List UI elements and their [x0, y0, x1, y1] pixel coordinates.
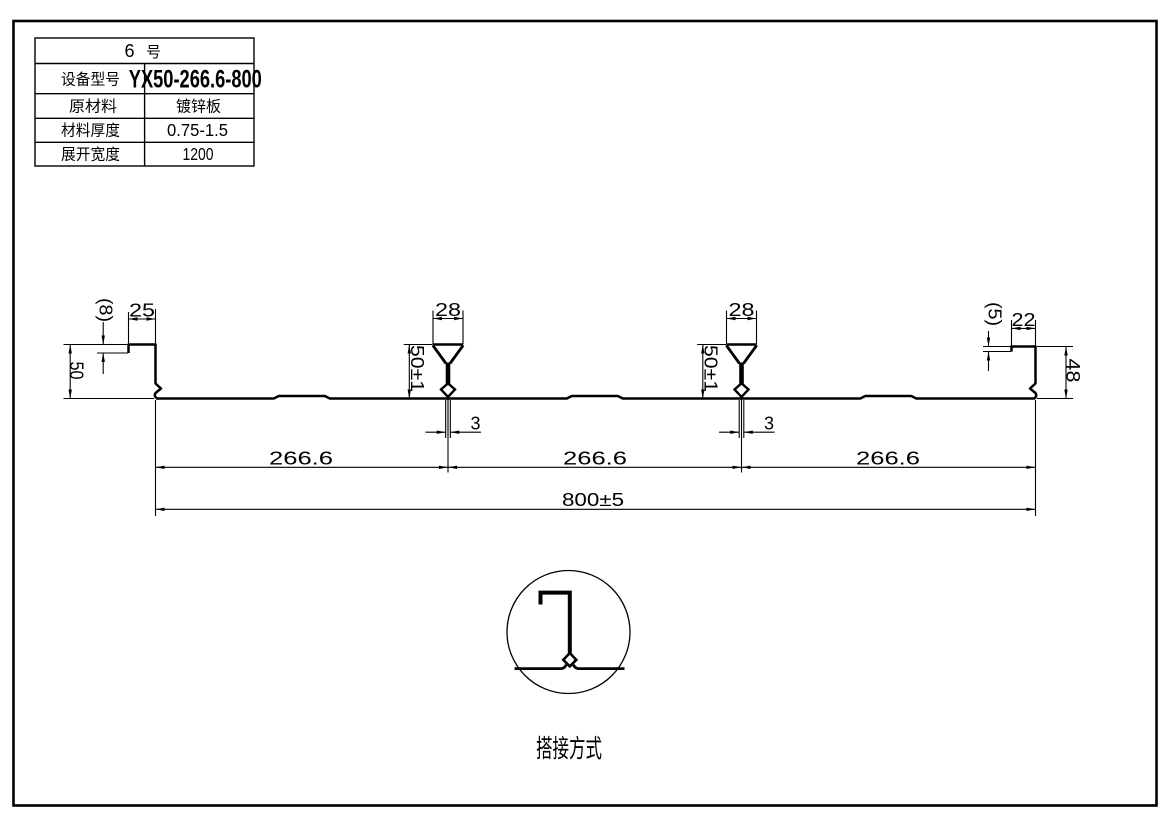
svg-text:展开宽度: 展开宽度	[61, 147, 120, 164]
svg-text:设备型号: 设备型号	[61, 71, 120, 88]
svg-text:号: 号	[146, 44, 161, 61]
svg-text:镀锌板: 镀锌板	[176, 98, 221, 116]
svg-text:25: 25	[129, 301, 155, 321]
svg-text:(8): (8)	[96, 298, 116, 322]
svg-text:266.6: 266.6	[856, 448, 920, 469]
svg-text:50: 50	[65, 362, 86, 380]
svg-text:50±1: 50±1	[701, 345, 721, 392]
svg-text:266.6: 266.6	[563, 448, 627, 469]
svg-text:6: 6	[124, 41, 134, 61]
svg-text:材料厚度: 材料厚度	[61, 123, 120, 140]
svg-text:原材料: 原材料	[69, 99, 117, 116]
svg-text:(5): (5)	[985, 302, 1005, 326]
svg-text:48: 48	[1061, 359, 1082, 383]
svg-text:50±1: 50±1	[407, 345, 427, 392]
svg-text:搭接方式: 搭接方式	[536, 735, 602, 763]
svg-text:1200: 1200	[183, 144, 214, 164]
svg-text:266.6: 266.6	[269, 448, 333, 469]
svg-text:3: 3	[470, 414, 480, 434]
svg-text:28: 28	[729, 300, 755, 320]
svg-text:3: 3	[764, 414, 774, 434]
svg-text:YX50-266.6-800: YX50-266.6-800	[129, 66, 262, 94]
svg-text:22: 22	[1012, 310, 1036, 330]
svg-text:800±5: 800±5	[562, 489, 624, 510]
svg-text:28: 28	[435, 300, 461, 320]
svg-text:0.75-1.5: 0.75-1.5	[167, 120, 228, 140]
